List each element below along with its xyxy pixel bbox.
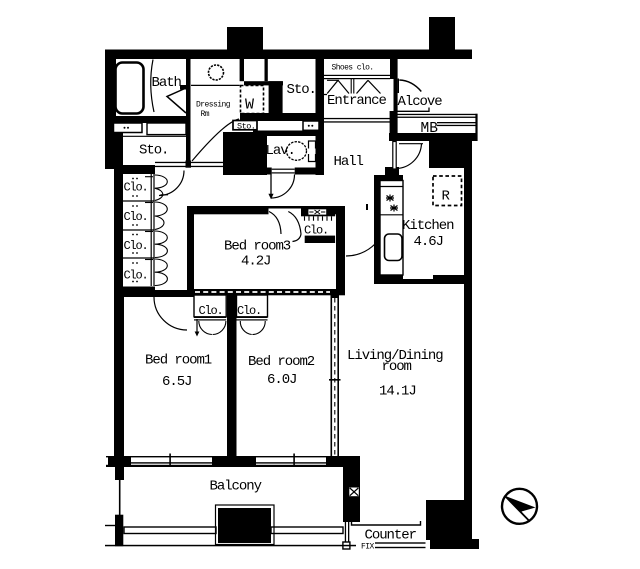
svg-text:Kitchen: Kitchen (402, 218, 454, 234)
svg-text:Bed room3: Bed room3 (224, 238, 291, 254)
svg-text:Alcove: Alcove (398, 94, 443, 110)
svg-text:Clo.: Clo. (124, 268, 148, 282)
svg-text:Lav.: Lav. (266, 143, 295, 159)
svg-text:MB: MB (421, 121, 439, 137)
svg-text:4.2J: 4.2J (241, 254, 270, 270)
svg-text:room: room (382, 359, 412, 375)
svg-text:Sto.: Sto. (139, 142, 168, 158)
svg-text:Clo.: Clo. (124, 239, 148, 253)
svg-text:Bath: Bath (152, 75, 182, 91)
svg-text:Bed room1: Bed room1 (145, 353, 212, 369)
svg-text:6.0J: 6.0J (267, 372, 296, 388)
svg-text:Entrance: Entrance (327, 93, 386, 109)
svg-text:Clo.: Clo. (199, 304, 223, 318)
svg-text:Clo.: Clo. (304, 223, 328, 237)
svg-text:Bed room2: Bed room2 (248, 354, 315, 370)
svg-text:W: W (245, 97, 254, 114)
svg-text:Counter: Counter (365, 528, 417, 544)
svg-text:Dressing: Dressing (196, 100, 231, 109)
svg-text:4.6J: 4.6J (414, 234, 443, 250)
svg-text:Balcony: Balcony (210, 478, 262, 494)
svg-text:14.1J: 14.1J (379, 383, 416, 399)
svg-text:Hall: Hall (334, 154, 364, 170)
svg-text:Rm: Rm (201, 110, 210, 119)
svg-text:Sto.: Sto. (287, 82, 316, 98)
svg-text:Sto.: Sto. (237, 121, 255, 131)
svg-text:Shoes clo.: Shoes clo. (332, 64, 374, 73)
svg-text:FIX: FIX (361, 543, 375, 552)
svg-text:Clo.: Clo. (124, 181, 148, 195)
svg-text:Clo.: Clo. (237, 304, 261, 318)
svg-text:6.5J: 6.5J (162, 374, 191, 390)
svg-text:Clo.: Clo. (124, 210, 148, 224)
